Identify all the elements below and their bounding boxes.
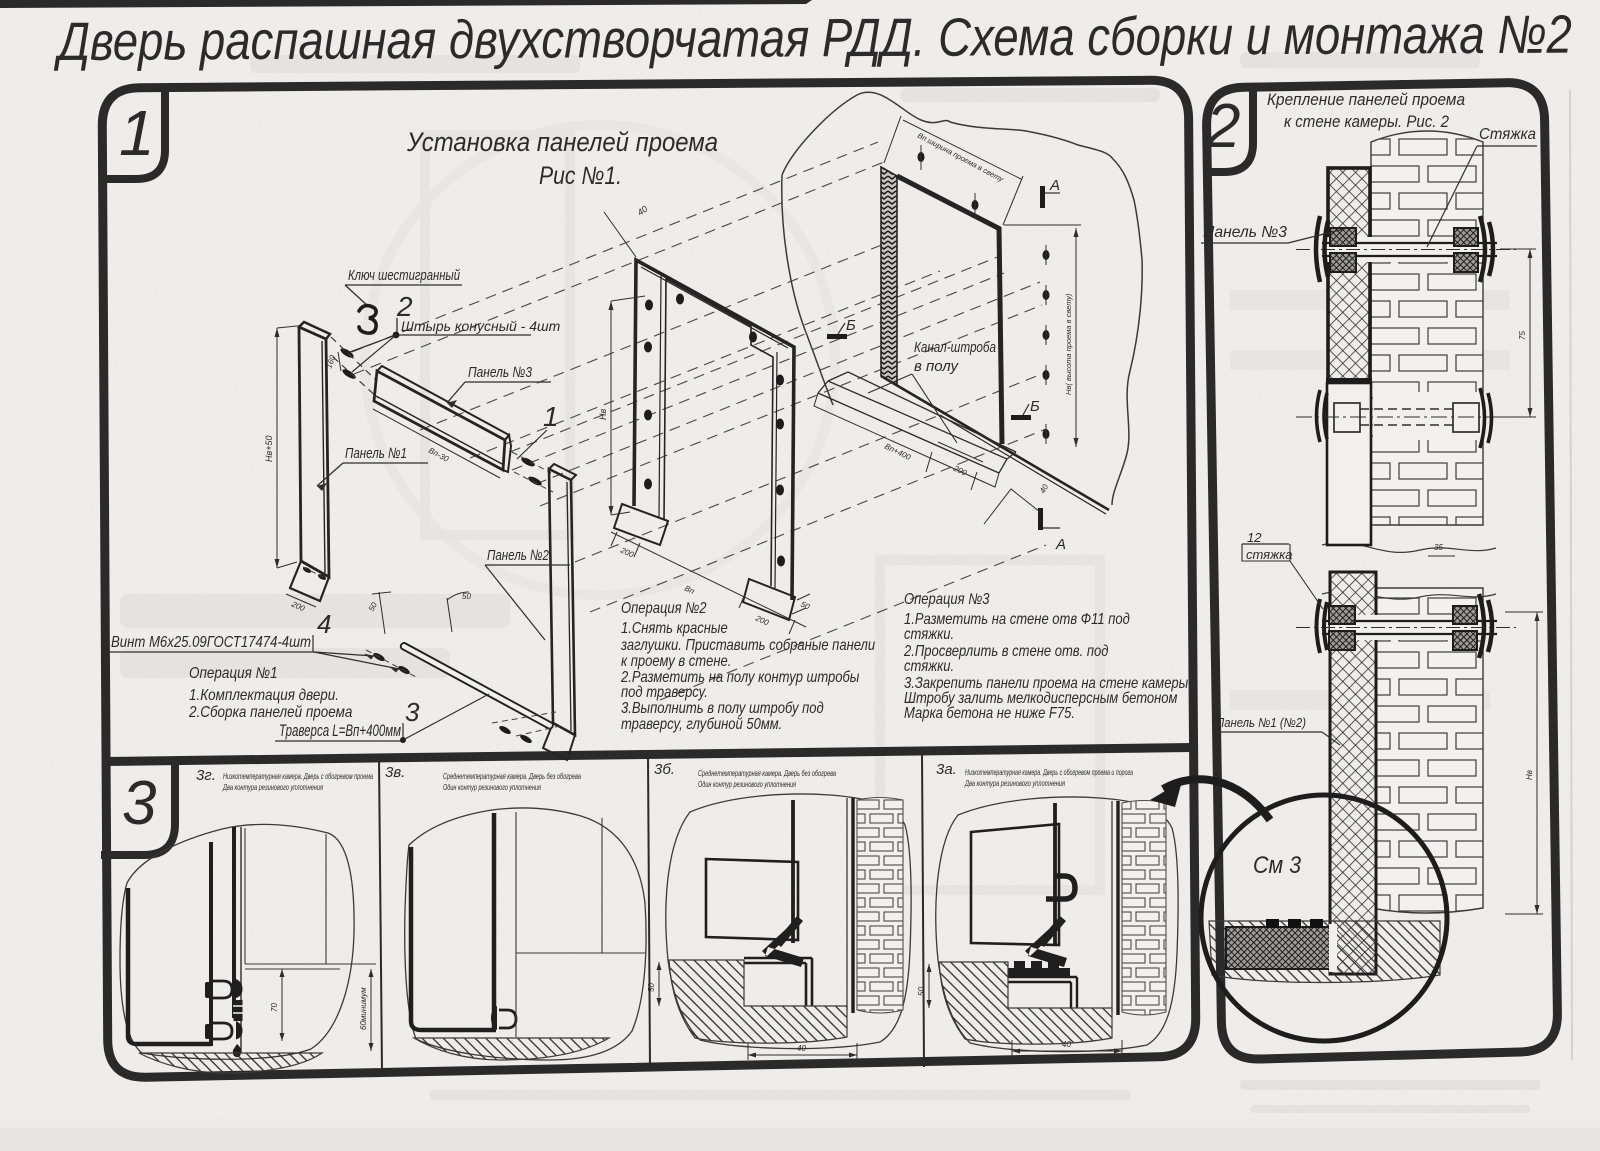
svg-text:Панель №3: Панель №3 — [468, 364, 533, 381]
svg-text:Винт М6х25.09ГОСТ17474-4шт: Винт М6х25.09ГОСТ17474-4шт — [111, 634, 311, 651]
svg-text:Крепление панелей проема: Крепление панелей проема — [1267, 90, 1465, 109]
svg-text:Ключ шестигранный: Ключ шестигранный — [348, 267, 460, 284]
svg-text:1: 1 — [543, 401, 559, 432]
svg-text:стяжки.: стяжки. — [904, 626, 954, 643]
svg-text:Панель №3: Панель №3 — [1203, 224, 1287, 241]
svg-text:3в.: 3в. — [385, 764, 405, 781]
svg-text:2.Сборка панелей проема: 2.Сборка панелей проема — [188, 704, 352, 721]
svg-text:Стяжка: Стяжка — [1479, 126, 1536, 143]
svg-text:Операция №1: Операция №1 — [189, 665, 278, 682]
svg-text:Панель №1 (№2): Панель №1 (№2) — [1216, 715, 1306, 730]
svg-text:А: А — [1049, 177, 1060, 194]
svg-text:50: 50 — [647, 983, 656, 992]
svg-text:в полу: в полу — [914, 358, 960, 375]
svg-text:заглушки. Приставить собраные: заглушки. Приставить собраные панели — [620, 637, 875, 654]
svg-text:Два контура резинового уплотне: Два контура резинового уплотнения — [964, 778, 1065, 788]
svg-text:3б.: 3б. — [654, 761, 675, 778]
svg-text:4: 4 — [317, 609, 331, 639]
svg-text:Нв: Нв — [1525, 770, 1534, 780]
svg-text:Б: Б — [846, 317, 856, 334]
svg-text:Низкотемпературная камера. Две: Низкотемпературная камера. Дверь с обогр… — [965, 767, 1133, 777]
svg-text:40: 40 — [797, 1044, 806, 1053]
svg-text:к проему в стене.: к проему в стене. — [621, 653, 731, 670]
svg-text:Нв( высота проема в свету): Нв( высота проема в свету) — [1064, 293, 1073, 395]
svg-text:под траверсу.: под траверсу. — [621, 684, 708, 701]
svg-text:Панель №1: Панель №1 — [345, 445, 407, 462]
svg-text:50: 50 — [462, 592, 471, 601]
svg-text:Рис №1.: Рис №1. — [539, 162, 622, 190]
svg-text:Установка панелей проема: Установка панелей проема — [406, 127, 718, 157]
svg-text:3а.: 3а. — [936, 761, 957, 778]
svg-text:Б: Б — [1030, 398, 1040, 415]
svg-text:Канал-штроба: Канал-штроба — [914, 339, 996, 356]
svg-text:Один контур резинового уплотне: Один контур резинового уплотнения — [443, 782, 541, 792]
svg-text:Панель №2: Панель №2 — [487, 547, 549, 564]
svg-text:12: 12 — [1247, 530, 1262, 545]
svg-text:Операция №3: Операция №3 — [904, 591, 990, 608]
svg-text:3: 3 — [122, 769, 156, 838]
svg-text:стяжка: стяжка — [1246, 547, 1292, 562]
svg-text:Операция №2: Операция №2 — [621, 600, 707, 617]
svg-text:50: 50 — [917, 987, 926, 996]
svg-text:Один контур резинового уплотне: Один контур резинового уплотнения — [698, 779, 796, 789]
svg-text:Среднетемпературная камера. Дв: Среднетемпературная камера. Дверь без об… — [443, 771, 581, 781]
svg-text:Нв: Нв — [598, 409, 608, 420]
svg-text:А: А — [1055, 536, 1066, 553]
svg-text:Траверса L=Вп+400мм: Траверса L=Вп+400мм — [279, 722, 401, 740]
svg-text:Штырь конусный - 4шт: Штырь конусный - 4шт — [401, 318, 561, 334]
svg-text:1: 1 — [119, 97, 155, 169]
svg-text:к стене камеры. Рис. 2: к стене камеры. Рис. 2 — [1284, 112, 1449, 131]
svg-text:Низкотемпературная камера. Две: Низкотемпературная камера. Дверь с обогр… — [223, 771, 373, 781]
svg-text:Дверь распашная двухстворчатая: Дверь распашная двухстворчатая РДД. Схем… — [54, 5, 1572, 72]
svg-text:См 3: См 3 — [1253, 852, 1302, 879]
svg-text:1.Снять красные: 1.Снять красные — [621, 620, 728, 637]
svg-text:40: 40 — [1062, 1040, 1071, 1049]
svg-text:Среднетемпературная камера. Дв: Среднетемпературная камера. Дверь без об… — [698, 768, 836, 778]
svg-text:3.Выполнить в полу штробу под: 3.Выполнить в полу штробу под — [621, 700, 824, 717]
svg-text:Два контура резинового уплотне: Два контура резинового уплотнения — [222, 782, 323, 792]
svg-text:1.Комплектация двери.: 1.Комплектация двери. — [189, 687, 339, 704]
svg-text:35: 35 — [1434, 543, 1443, 552]
svg-text:75: 75 — [1518, 331, 1527, 340]
svg-text:стяжки.: стяжки. — [904, 658, 954, 675]
svg-text:70: 70 — [270, 1003, 279, 1012]
svg-text:траверсу, глубиной 50мм.: траверсу, глубиной 50мм. — [621, 716, 782, 733]
svg-text:2: 2 — [1205, 92, 1240, 161]
svg-text:Нв+50: Нв+50 — [264, 436, 274, 462]
svg-text:60минимум: 60минимум — [359, 987, 368, 1030]
svg-text:Марка бетона не ниже F75.: Марка бетона не ниже F75. — [904, 705, 1075, 722]
svg-text:3г.: 3г. — [196, 767, 216, 784]
svg-text:3: 3 — [405, 697, 420, 727]
